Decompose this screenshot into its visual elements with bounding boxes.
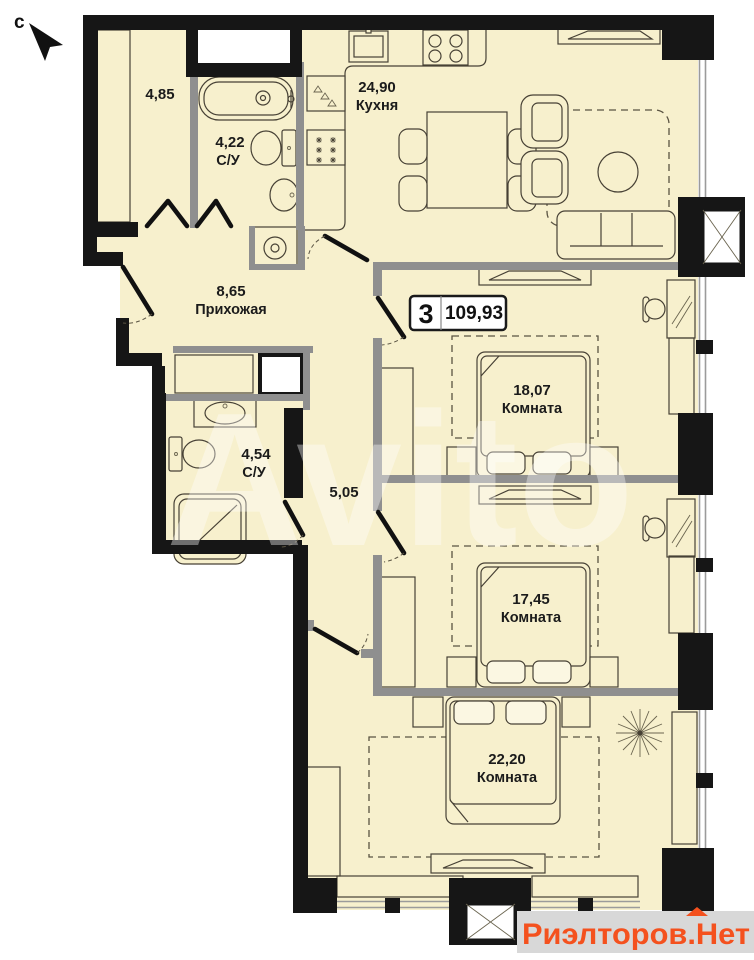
watermark-bottom-right: Риэлторов.Нет <box>517 907 754 953</box>
niche-opening <box>198 30 290 63</box>
label-bedroom1-area: 18,07 <box>513 382 551 399</box>
stove-icon <box>423 30 468 65</box>
elevator-shaft-icon <box>703 210 741 264</box>
nightstand-icon <box>562 697 590 727</box>
label-hallway-area: 8,65 <box>216 283 245 300</box>
tv-console-icon <box>431 854 545 873</box>
label-bedroom2-name: Комната <box>501 610 562 626</box>
label-bath-top-name: С/У <box>216 153 241 169</box>
fridge-icon <box>307 76 345 111</box>
toilet-icon <box>251 130 296 166</box>
label-bath-mid-name: С/У <box>242 465 267 481</box>
label-kitchen-name: Кухня <box>356 98 398 114</box>
label-bath-mid-area: 4,54 <box>241 446 271 463</box>
floor-plan: Avito 3 109,93 4,85 4,22 С/У 24,90 Кухня… <box>0 0 754 960</box>
label-hallway-name: Прихожая <box>195 302 267 318</box>
coffee-table-icon <box>598 152 638 192</box>
north-arrow-icon <box>29 23 63 61</box>
watermark-center: Avito <box>166 374 634 586</box>
label-kitchen-area: 24,90 <box>358 79 396 96</box>
bathtub-icon <box>199 77 294 120</box>
label-bedroom3-area: 22,20 <box>488 751 526 768</box>
elevator-shaft-icon <box>466 904 515 940</box>
label-bedroom1-name: Комната <box>502 401 563 417</box>
nightstand-icon <box>447 657 476 687</box>
floor-plan-svg: Avito 3 109,93 4,85 4,22 С/У 24,90 Кухня… <box>0 0 754 960</box>
badge-total-area: 109,93 <box>445 303 503 324</box>
nightstand-icon <box>413 697 443 727</box>
sofa-icon <box>557 211 675 259</box>
label-corridor-area: 5,05 <box>329 484 358 501</box>
label-bedroom2-area: 17,45 <box>512 591 550 608</box>
total-area-badge: 3 109,93 <box>410 296 506 330</box>
desk-icon <box>667 280 695 338</box>
label-bath-top-area: 4,22 <box>215 134 244 151</box>
label-bedroom3-name: Комната <box>477 770 538 786</box>
desk-icon <box>667 499 695 557</box>
badge-rooms-count: 3 <box>418 299 433 329</box>
dining-table-icon <box>427 112 507 208</box>
label-storage-area: 4,85 <box>145 86 174 103</box>
plant-icon <box>616 709 664 757</box>
nightstand-icon <box>590 657 618 687</box>
sink-icon <box>270 179 298 211</box>
watermark-site-name: Риэлторов.Нет <box>522 918 750 951</box>
compass-label: с <box>14 12 25 33</box>
freezer-icon <box>307 130 345 165</box>
washing-machine-icon <box>253 227 297 269</box>
compass: с <box>14 12 63 61</box>
